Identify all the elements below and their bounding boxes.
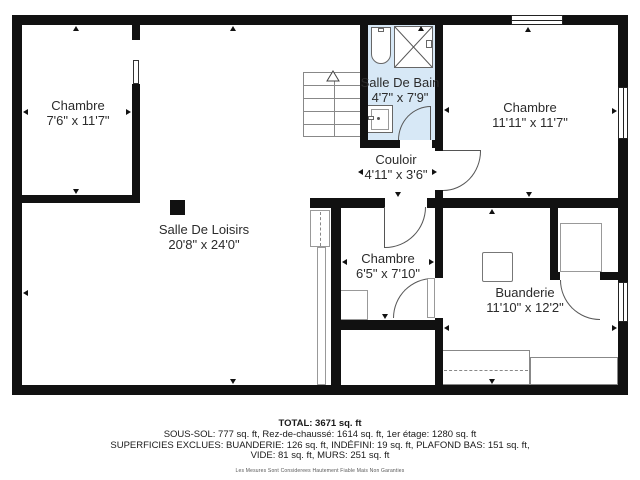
wall-closet-bottom-a (550, 272, 560, 280)
dimension-tick (612, 325, 617, 331)
dimension-tick (429, 259, 434, 265)
dimension-tick (489, 209, 495, 214)
door-arc-small-chamber-top (385, 207, 426, 248)
water-heater (482, 252, 513, 282)
shower-head-icon (426, 40, 432, 48)
vanity-knob (377, 117, 380, 120)
room-label-buanderie: Buanderie 11'10" x 12'2" (486, 285, 564, 315)
dimension-tick (230, 379, 236, 384)
dimension-tick (612, 108, 617, 114)
summary-floors: SOUS-SOL: 777 sq. ft, Rez-de-chaussé: 16… (0, 430, 640, 441)
stair-tread (303, 124, 363, 125)
dimension-tick (73, 26, 79, 31)
dimension-tick (23, 109, 28, 115)
door-leaf-chambre-tl (133, 60, 139, 84)
wall-small-chamber-bottom (331, 320, 443, 330)
laundry-counter-right (530, 357, 618, 385)
bathtub-faucet (378, 28, 384, 32)
room-name: Salle De Loisirs (159, 222, 249, 237)
wall-bathroom-bottom-a (360, 140, 400, 148)
room-dimensions: 4'7" x 7'9" (361, 90, 440, 105)
wall-buanderie-left-lower (435, 318, 443, 395)
room-label-salle-de-bain: Salle De Bain 4'7" x 7'9" (361, 75, 440, 105)
wall-chambre-tl-right-stub (132, 25, 140, 40)
dimension-tick (230, 26, 236, 31)
room-name: Chambre (46, 98, 109, 113)
floor-plan: Chambre 7'6" x 11'7" Salle De Bain 4'7" … (0, 0, 640, 480)
door-leaf-small-chamber-right (427, 278, 435, 318)
wall-outer-left (12, 15, 22, 395)
dimension-tick (342, 259, 347, 265)
dimension-tick (126, 109, 131, 115)
vanity-faucet (368, 116, 374, 120)
wall-chambre-tl-bottom (22, 195, 140, 203)
wall-mid-horizontal-left (310, 198, 385, 208)
area-summary: TOTAL: 3671 sq. ft SOUS-SOL: 777 sq. ft,… (0, 419, 640, 477)
wall-loisirs-divider (331, 208, 341, 395)
dimension-tick (444, 107, 449, 113)
door-leaf-chamber-tr (443, 150, 481, 151)
window-right-chamber (618, 87, 628, 139)
dimension-tick (489, 379, 495, 384)
small-chamber-closet (340, 290, 368, 320)
door-leaf-small-chamber-top (384, 207, 385, 248)
room-label-couloir: Couloir 4'11" x 3'6" (364, 152, 427, 182)
room-dimensions: 20'8" x 24'0" (159, 237, 249, 252)
dimension-tick (418, 26, 424, 31)
door-leaf-bathroom (430, 106, 431, 140)
room-dimensions: 11'11" x 11'7" (492, 115, 568, 130)
summary-disclaimer: Les Mesures Sont Considerees Hautement F… (0, 466, 640, 477)
dimension-tick (23, 290, 28, 296)
dimension-tick (526, 192, 532, 197)
room-name: Chambre (356, 251, 420, 266)
summary-exclusions-2: VIDE: 81 sq. ft, MURS: 251 sq. ft (0, 451, 640, 462)
room-name: Couloir (364, 152, 427, 167)
door-arc-chamber-tr (443, 151, 481, 191)
window-top-chamber (511, 15, 563, 25)
wall-closet-left (550, 208, 558, 280)
wall-closet-bottom-b (600, 272, 628, 280)
column-post (170, 200, 185, 215)
wall-chambre-tl-right (132, 84, 140, 203)
room-label-chambre-tr: Chambre 11'11" x 11'7" (492, 100, 568, 130)
room-name: Buanderie (486, 285, 564, 300)
laundry-counter-left (441, 350, 530, 385)
couloir-dim-arrow-right (432, 169, 437, 175)
dimension-tick (73, 189, 79, 194)
room-dimensions: 6'5" x 7'10" (356, 266, 420, 281)
dimension-tick (525, 27, 531, 32)
under-stair-dashed-line (320, 212, 321, 246)
wall-mid-horizontal-right (427, 198, 628, 208)
room-dimensions: 7'6" x 11'7" (46, 113, 109, 128)
room-label-chambre-tl: Chambre 7'6" x 11'7" (46, 98, 109, 128)
dimension-tick (395, 192, 401, 197)
stair-tread (303, 98, 363, 99)
room-label-chambre-small: Chambre 6'5" x 7'10" (356, 251, 420, 281)
bathtub (371, 27, 391, 64)
closet-shelf (560, 223, 602, 272)
wall-outer-bottom (12, 385, 628, 395)
door-arc-closet (560, 280, 600, 320)
thin-partition (317, 247, 326, 385)
window-right-buanderie (618, 282, 628, 322)
room-label-salle-de-loisirs: Salle De Loisirs 20'8" x 24'0" (159, 222, 249, 252)
stairs-up-arrow-icon (326, 70, 340, 82)
couloir-dim-arrow-left (358, 169, 363, 175)
dimension-tick (382, 314, 388, 319)
wall-buanderie-left-upper (435, 208, 443, 278)
dimension-tick (444, 325, 449, 331)
room-name: Salle De Bain (361, 75, 440, 90)
counter-dashed-line (444, 370, 528, 371)
stair-tread (303, 85, 363, 86)
stair-tread (303, 111, 363, 112)
room-name: Chambre (492, 100, 568, 115)
room-dimensions: 11'10" x 12'2" (486, 300, 564, 315)
room-dimensions: 4'11" x 3'6" (364, 167, 427, 182)
